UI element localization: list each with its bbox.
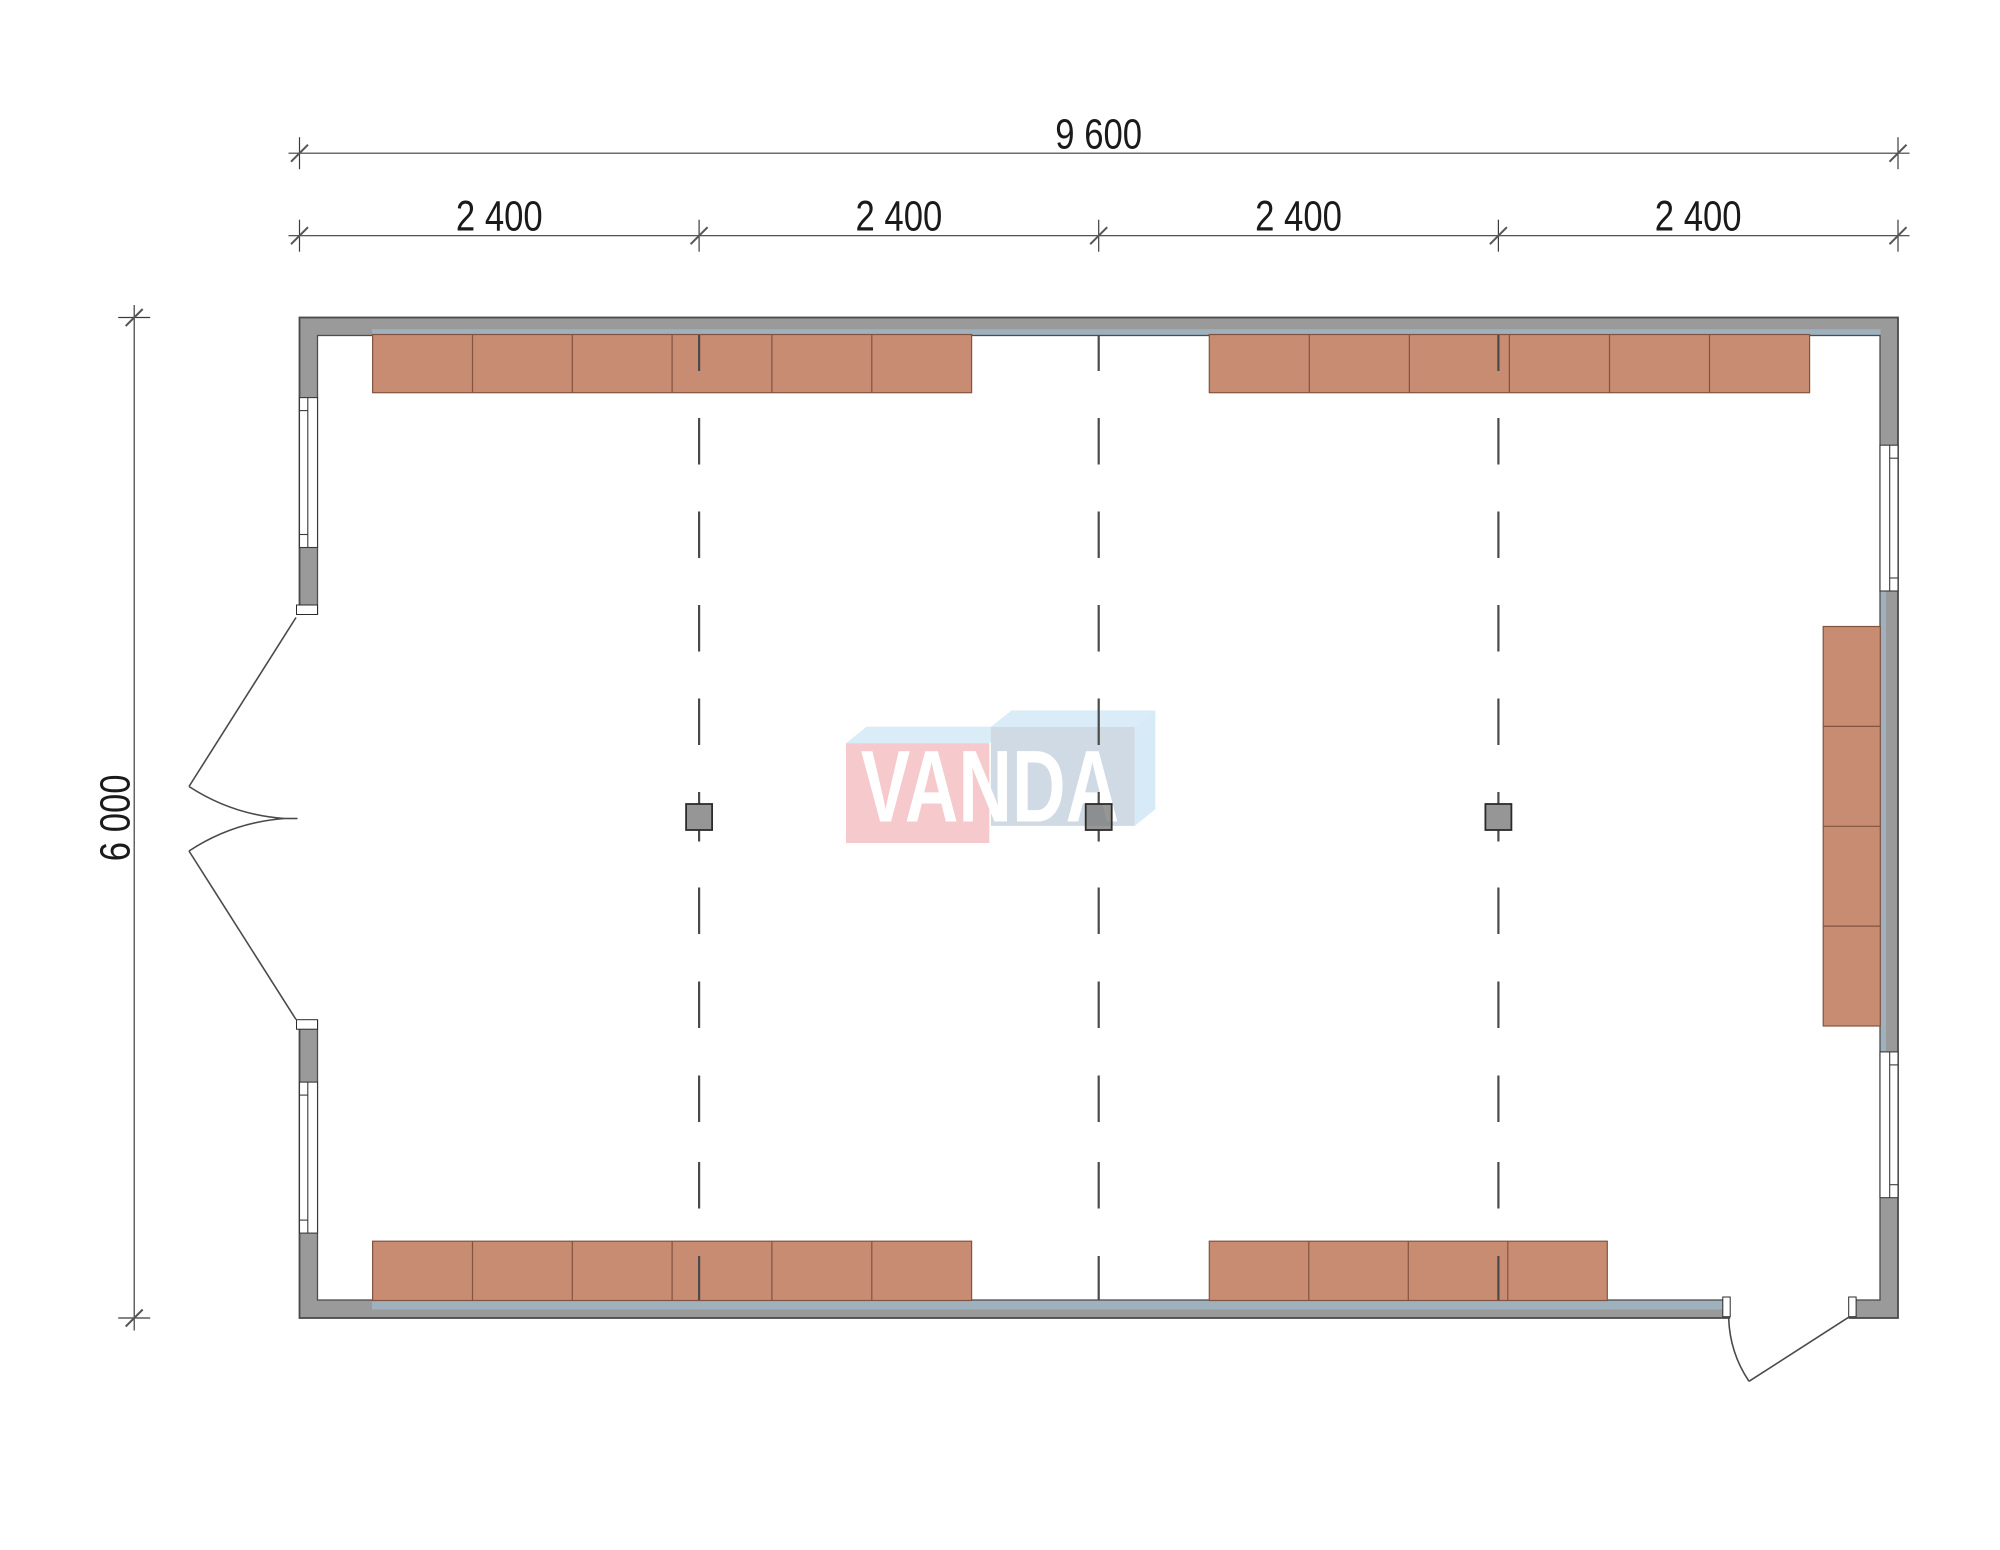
svg-text:2 400: 2 400	[1255, 193, 1342, 240]
svg-text:2 400: 2 400	[1655, 193, 1742, 240]
svg-text:6 000: 6 000	[92, 774, 139, 861]
svg-text:2 400: 2 400	[856, 193, 943, 240]
svg-text:2 400: 2 400	[456, 193, 543, 240]
svg-text:VANDA: VANDA	[861, 729, 1120, 843]
svg-text:9 600: 9 600	[1055, 111, 1142, 158]
